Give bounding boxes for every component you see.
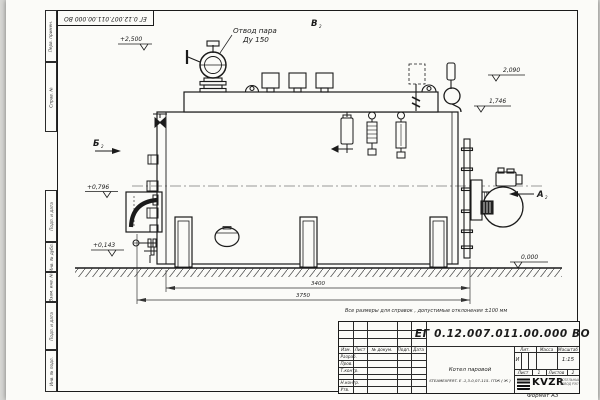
- row-tkontr: Т.контр.: [341, 369, 359, 373]
- ground-line: [75, 268, 562, 277]
- scale-label: Масштаб: [558, 348, 578, 352]
- product-name-line1: Котел паровой: [426, 367, 514, 373]
- steam-outlet-text-1: Отвод пара: [233, 26, 277, 35]
- row-utv: Утв.: [341, 388, 350, 392]
- col-podp: Подп.: [398, 348, 411, 352]
- col-izm: Изм.: [341, 348, 351, 352]
- scale-value: 1:15: [562, 358, 574, 364]
- svg-text:+2,500: +2,500: [120, 36, 142, 43]
- svg-text:3400: 3400: [311, 281, 325, 287]
- sheets-label: Листов: [549, 371, 565, 375]
- thermometer-pocket: [447, 63, 455, 89]
- lit-label: Лит.: [520, 348, 530, 352]
- elevation-mark-2500: +2,500: [118, 36, 152, 50]
- svg-text:+0,143: +0,143: [93, 242, 115, 249]
- svg-text:1,746: 1,746: [489, 98, 506, 105]
- level-indicator-column: [332, 112, 353, 153]
- format-label: Формат А3: [527, 393, 558, 399]
- row-nkontr: Н.контр.: [341, 381, 360, 385]
- steam-pipe-loop: [444, 88, 461, 112]
- mass-label: Масса: [540, 348, 553, 352]
- manhole: [215, 227, 239, 247]
- product-name-line2: STEAMEXPERT- Е -1,3-0,07-115- ГПЖ ( Ж ): [426, 378, 514, 383]
- svg-text:А: А: [536, 190, 544, 200]
- company-name: КОТЕЛЬНЫЙ ЗАВОД РЭП: [560, 379, 580, 387]
- svg-text:3750: 3750: [296, 293, 310, 299]
- elevation-mark-0143: +0,143: [91, 242, 124, 256]
- svg-text:0,000: 0,000: [521, 254, 538, 261]
- sheets-value: 2: [572, 371, 575, 375]
- elevation-mark-0796: +0,796: [85, 184, 118, 198]
- col-list: Лист: [355, 348, 366, 352]
- lifting-lug-front: [246, 86, 259, 93]
- kvzr-logo-icon: [517, 378, 530, 390]
- safety-valve-covers: [262, 73, 333, 92]
- reference-note: Все размеры для справок , допустимые отк…: [345, 308, 507, 314]
- steam-outlet-valve: [187, 41, 226, 92]
- svg-text:2: 2: [101, 144, 104, 149]
- row-razrab: Разраб.: [341, 355, 357, 359]
- svg-text:В: В: [311, 19, 317, 29]
- steam-outlet-label: Отвод пара Ду 150: [220, 26, 277, 53]
- svg-text:2: 2: [545, 195, 548, 200]
- svg-text:+0,796: +0,796: [87, 184, 109, 191]
- svg-text:Б: Б: [93, 139, 100, 149]
- col-data: Дата: [413, 348, 424, 352]
- col-doc: № докум.: [372, 348, 393, 352]
- steam-outlet-text-2: Ду 150: [242, 35, 269, 44]
- row-prov: Пров.: [341, 362, 353, 366]
- view-marker-b: Б 2: [93, 139, 121, 154]
- spring-safety-gauge: [367, 112, 377, 155]
- support-legs: [175, 217, 447, 267]
- lifting-lug-rear: [422, 85, 436, 92]
- sheet-label: Лист: [518, 371, 529, 375]
- elevation-mark-2090: 2,090: [488, 67, 525, 81]
- water-gauge-glass: [396, 112, 406, 158]
- svg-text:2,090: 2,090: [503, 67, 520, 74]
- elevation-mark-0000: 0,000: [510, 254, 548, 268]
- lit-value: И: [516, 358, 520, 363]
- drain-valves: [133, 239, 157, 263]
- steam-drum: [184, 92, 438, 112]
- burner-assembly: [471, 168, 523, 227]
- doc-number: ЕГ 0.12.007.011.00.000 ВО: [426, 322, 579, 346]
- drawing-sheet: Перв. примен. Справ. № Подп. и дата Инв.…: [0, 0, 600, 400]
- view-marker-v: В 2: [311, 19, 322, 29]
- sheet-value: 1: [538, 371, 541, 375]
- dimension-3400: 3400: [166, 260, 470, 304]
- elevation-mark-1746: 1,746: [474, 98, 511, 112]
- svg-text:2: 2: [319, 24, 322, 29]
- title-block: ЕГ 0.12.007.011.00.000 ВО Изм. Лист № до…: [338, 321, 580, 394]
